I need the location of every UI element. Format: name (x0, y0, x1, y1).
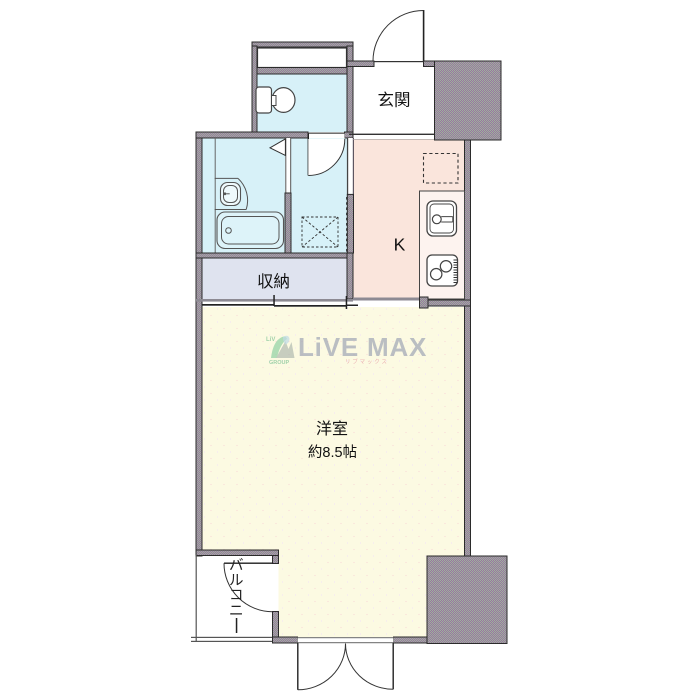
svg-text:約8.5帖: 約8.5帖 (308, 444, 357, 461)
svg-text:洋室: 洋室 (316, 420, 348, 438)
svg-text:バ: バ (229, 558, 244, 574)
svg-text:玄関: 玄関 (378, 91, 411, 110)
svg-text:LiV: LiV (266, 337, 275, 343)
svg-text:GROUP: GROUP (269, 360, 290, 366)
svg-text:LiVE MAX: LiVE MAX (298, 332, 427, 362)
svg-text:K: K (394, 235, 406, 255)
svg-text:ル: ル (229, 573, 244, 589)
svg-text:リブマックス: リブマックス (345, 358, 389, 366)
svg-text:ニ: ニ (229, 604, 244, 620)
svg-text:コ: コ (229, 588, 244, 604)
svg-text:収納: 収納 (257, 272, 290, 291)
